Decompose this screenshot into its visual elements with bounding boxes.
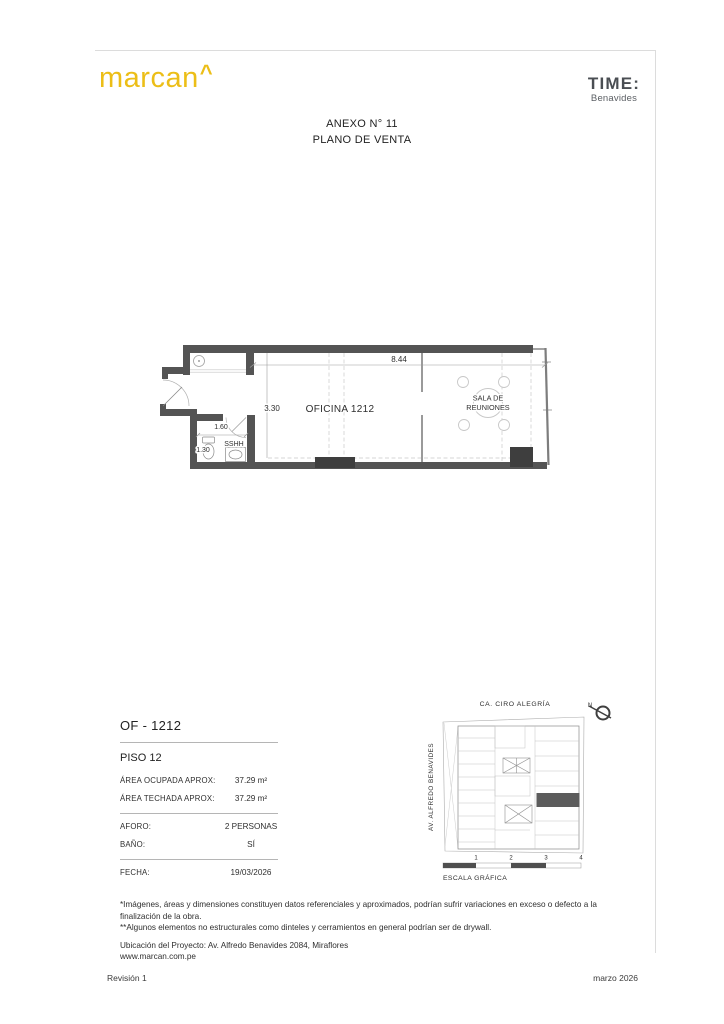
annex-title: ANEXO N° 11 — [0, 118, 724, 131]
entrance-door — [163, 380, 189, 406]
scale-tick-1: 1 — [474, 856, 478, 862]
disclaimer-1: *Imágenes, áreas y dimensiones constituy… — [120, 899, 628, 922]
time-benavides-logo: TIME: Benavides — [580, 75, 648, 104]
info-row-aforo: AFORO: 2 PERSONAS — [120, 822, 278, 831]
dim-bath-depth-label: 1.30 — [196, 447, 210, 454]
office-room-label: OFICINA 1212 — [306, 404, 375, 415]
area-techada-value: 37.29 m² — [224, 794, 278, 803]
disclaimer-2: **Algunos elementos no estructurales com… — [120, 922, 628, 934]
street-left-label: AV. ALFREDO BENAVIDES — [428, 743, 435, 831]
area-ocupada-value: 37.29 m² — [224, 776, 278, 785]
info-row-area-ocupada: ÁREA OCUPADA APROX: 37.29 m² — [120, 776, 278, 785]
time-logo-title: TIME: — [580, 75, 648, 93]
marcan-logo-text: marcan — [99, 62, 199, 94]
issue-date-label: marzo 2026 — [593, 973, 638, 983]
scale-tick-3: 3 — [544, 856, 548, 862]
ceiling-light-symbol — [194, 356, 205, 367]
marcan-logo-caret: ^ — [200, 60, 213, 85]
keyplan-building-outline — [458, 726, 579, 849]
info-divider-2 — [120, 859, 278, 860]
aforo-value: 2 PERSONAS — [224, 822, 278, 831]
aforo-label: AFORO: — [120, 822, 224, 831]
marcan-logo: marcan^ — [99, 62, 213, 95]
fecha-label: FECHA: — [120, 868, 224, 877]
unit-number: OF - 1212 — [120, 710, 278, 743]
info-row-fecha: FECHA: 19/03/2026 — [120, 868, 278, 877]
notes-block: *Imágenes, áreas y dimensiones constituy… — [120, 899, 628, 963]
plan-type-title: PLANO DE VENTA — [0, 134, 724, 147]
sheet-title: ANEXO N° 11 PLANO DE VENTA — [0, 118, 724, 147]
website: www.marcan.com.pe — [120, 951, 628, 963]
plan-right-facade — [533, 348, 552, 465]
graphic-scale-bar: 1 2 3 4 — [443, 856, 583, 869]
fecha-value: 19/03/2026 — [224, 868, 278, 877]
bathroom-door — [226, 418, 246, 438]
bano-value: SÍ — [224, 840, 278, 849]
dim-total-label: 8.44 — [391, 355, 407, 364]
floor-plan-drawing: 8.44 3.30 OFICINA 1212 SALA DE REUNIONES… — [150, 335, 570, 483]
bathroom-label: SSHH — [224, 441, 243, 448]
north-arrow-icon: N — [588, 703, 611, 720]
scale-tick-4: 4 — [579, 856, 583, 862]
revision-label: Revisión 1 — [107, 973, 147, 983]
floor-number: PISO 12 — [120, 752, 278, 764]
scale-label: ESCALA GRÁFICA — [443, 873, 507, 882]
bano-label: BAÑO: — [120, 840, 224, 849]
info-divider-1 — [120, 813, 278, 814]
meeting-room-label-2: REUNIONES — [466, 403, 510, 412]
project-location: Ubicación del Proyecto: Av. Alfredo Bena… — [120, 940, 628, 952]
key-plan-map: CA. CIRO ALEGRÍA N — [427, 696, 617, 888]
time-logo-subtitle: Benavides — [580, 93, 648, 104]
unit-info-panel: OF - 1212 PISO 12 ÁREA OCUPADA APROX: 37… — [120, 710, 278, 886]
scale-tick-2: 2 — [509, 856, 513, 862]
dim-office-label: 3.30 — [264, 404, 280, 413]
street-top-label: CA. CIRO ALEGRÍA — [480, 699, 551, 708]
meeting-room-label-1: SALA DE — [473, 394, 504, 403]
area-ocupada-label: ÁREA OCUPADA APROX: — [120, 776, 224, 785]
plan-sheet: marcan^ TIME: Benavides ANEXO N° 11 PLAN… — [0, 0, 724, 1024]
header-divider — [95, 50, 655, 51]
info-row-bano: BAÑO: SÍ — [120, 840, 278, 849]
area-techada-label: ÁREA TECHADA APROX: — [120, 794, 224, 803]
keyplan-unit-highlight — [537, 793, 580, 807]
info-row-area-techada: ÁREA TECHADA APROX: 37.29 m² — [120, 794, 278, 803]
dim-bath-width-label: 1.60 — [214, 424, 228, 431]
right-border — [655, 50, 656, 953]
sink-icon — [226, 448, 246, 462]
